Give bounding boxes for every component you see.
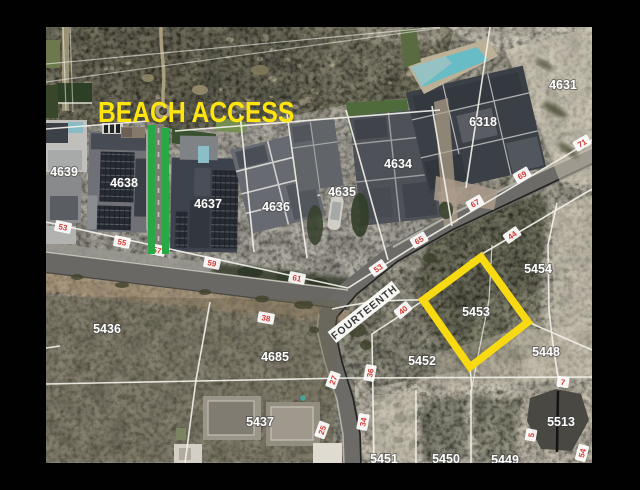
svg-text:5436: 5436 [93,322,121,336]
svg-text:5448: 5448 [532,345,560,359]
svg-text:5453: 5453 [462,305,490,319]
svg-text:5452: 5452 [408,354,436,368]
svg-text:4634: 4634 [384,157,412,171]
svg-text:4638: 4638 [110,176,138,190]
svg-text:4685: 4685 [261,350,289,364]
svg-text:5454: 5454 [524,262,552,276]
svg-text:BEACH ACCESS: BEACH ACCESS [98,96,294,128]
svg-text:4631: 4631 [549,78,577,92]
svg-text:4637: 4637 [194,197,222,211]
svg-text:5437: 5437 [246,415,274,429]
svg-text:6318: 6318 [469,115,497,129]
svg-text:4635: 4635 [328,185,356,199]
svg-text:4636: 4636 [262,200,290,214]
svg-text:5513: 5513 [547,415,575,429]
svg-text:4639: 4639 [50,165,78,179]
